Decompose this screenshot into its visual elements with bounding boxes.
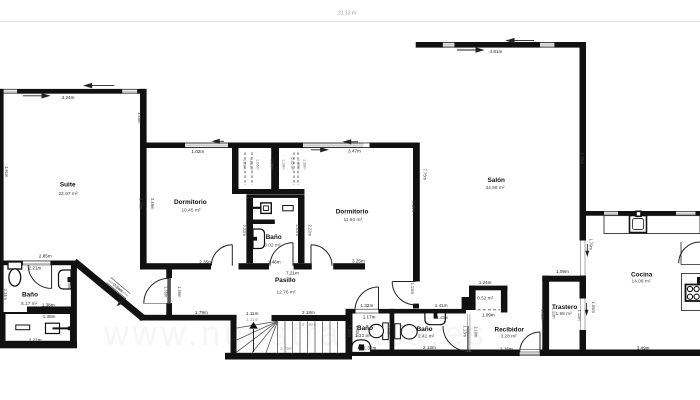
- svg-text:1.11m: 1.11m: [551, 308, 556, 320]
- svg-text:2.34m: 2.34m: [3, 289, 8, 301]
- svg-text:1.36m: 1.36m: [177, 286, 182, 298]
- svg-text:1.11m: 1.11m: [577, 310, 582, 322]
- svg-text:2.21m: 2.21m: [29, 265, 42, 270]
- svg-text:1.32m: 1.32m: [361, 303, 374, 308]
- svg-text:1.06m: 1.06m: [256, 159, 260, 170]
- svg-text:Recibidor: Recibidor: [495, 326, 525, 333]
- svg-text:3.49m: 3.49m: [150, 198, 155, 210]
- svg-text:1.98 m²: 1.98 m²: [556, 311, 573, 317]
- svg-text:3.47m: 3.47m: [348, 149, 361, 154]
- svg-text:Baño: Baño: [417, 326, 433, 333]
- svg-text:14.06 m²: 14.06 m²: [632, 279, 651, 285]
- svg-text:3.02 m²: 3.02 m²: [264, 242, 281, 248]
- svg-text:1.41m: 1.41m: [435, 303, 448, 308]
- svg-text:2.35m: 2.35m: [199, 259, 212, 264]
- svg-text:2.16m: 2.16m: [500, 346, 513, 351]
- svg-text:1.09m: 1.09m: [482, 312, 495, 317]
- svg-text:1.05m: 1.05m: [347, 326, 352, 338]
- svg-text:2.21m: 2.21m: [29, 337, 42, 342]
- svg-text:1.11m: 1.11m: [246, 311, 259, 316]
- svg-text:3.49m: 3.49m: [637, 346, 650, 351]
- svg-text:34.88 m²: 34.88 m²: [486, 185, 505, 191]
- svg-text:2.41 m²: 2.41 m²: [418, 334, 435, 340]
- svg-text:2.18m: 2.18m: [302, 322, 315, 327]
- svg-text:21.13 m: 21.13 m: [338, 11, 356, 17]
- svg-text:0.91m: 0.91m: [399, 325, 403, 335]
- svg-text:1.46m: 1.46m: [137, 112, 142, 124]
- svg-text:3.28 m²: 3.28 m²: [501, 333, 518, 339]
- svg-text:2.13m: 2.13m: [423, 345, 436, 350]
- svg-text:4.24m: 4.24m: [62, 95, 75, 100]
- svg-text:0.55m: 0.55m: [67, 279, 71, 289]
- svg-text:Salón: Salón: [488, 177, 505, 184]
- svg-text:1.28m: 1.28m: [296, 159, 300, 170]
- svg-text:11.60 m²: 11.60 m²: [344, 217, 363, 223]
- svg-text:1.79m: 1.79m: [589, 239, 594, 251]
- svg-text:2.18m: 2.18m: [302, 310, 315, 315]
- svg-text:3.76m: 3.76m: [139, 198, 144, 210]
- svg-text:3.25m: 3.25m: [352, 259, 365, 264]
- svg-text:0.88 m²: 0.88 m²: [249, 158, 253, 172]
- svg-text:1.37m: 1.37m: [364, 345, 377, 350]
- svg-text:Baño: Baño: [266, 234, 282, 241]
- svg-text:2.22m: 2.22m: [242, 225, 247, 237]
- svg-text:4.91m: 4.91m: [4, 166, 9, 178]
- svg-text:1.02m: 1.02m: [191, 149, 204, 154]
- svg-text:1.13m: 1.13m: [410, 283, 415, 295]
- svg-text:1.28m: 1.28m: [302, 159, 306, 170]
- svg-text:12.76 m²: 12.76 m²: [277, 289, 296, 295]
- svg-text:1.38m: 1.38m: [43, 314, 56, 319]
- svg-text:4.81m: 4.81m: [490, 49, 503, 54]
- svg-text:1.11m: 1.11m: [246, 317, 259, 322]
- svg-text:7.75m: 7.75m: [423, 169, 428, 181]
- svg-text:3.29m: 3.29m: [280, 346, 293, 351]
- svg-text:Dormitorio: Dormitorio: [174, 199, 207, 206]
- svg-text:5.17 m²: 5.17 m²: [21, 301, 38, 307]
- svg-text:1.06m: 1.06m: [591, 302, 596, 314]
- svg-text:2.03m: 2.03m: [295, 225, 300, 237]
- svg-text:1.17m: 1.17m: [363, 314, 376, 319]
- svg-text:7.21m: 7.21m: [286, 270, 299, 275]
- svg-text:2.22m: 2.22m: [308, 225, 313, 237]
- svg-text:1.18m: 1.18m: [269, 159, 273, 170]
- svg-text:1.16m: 1.16m: [474, 326, 479, 338]
- svg-text:Suite: Suite: [60, 181, 76, 188]
- svg-text:3.48m: 3.48m: [411, 201, 416, 213]
- svg-text:1.23m: 1.23m: [243, 159, 247, 170]
- svg-text:1.18m: 1.18m: [281, 159, 285, 170]
- svg-text:Pasillo: Pasillo: [275, 277, 296, 284]
- svg-text:0.62 m²: 0.62 m²: [290, 158, 294, 172]
- svg-text:22.97 m²: 22.97 m²: [59, 191, 78, 197]
- svg-text:1.35m: 1.35m: [164, 286, 169, 298]
- svg-text:1.79m: 1.79m: [195, 310, 208, 315]
- svg-text:6.78m: 6.78m: [579, 153, 584, 165]
- svg-text:1.24m: 1.24m: [479, 280, 492, 285]
- svg-text:Dormitorio: Dormitorio: [336, 208, 369, 215]
- svg-text:10.45 m²: 10.45 m²: [182, 208, 201, 214]
- svg-text:1.13m: 1.13m: [463, 326, 468, 338]
- svg-text:1.38m: 1.38m: [42, 302, 55, 307]
- svg-text:Baño: Baño: [22, 292, 38, 299]
- svg-text:1.09m: 1.09m: [556, 269, 569, 274]
- svg-text:1.05m: 1.05m: [355, 326, 360, 338]
- svg-text:2.85m: 2.85m: [39, 254, 52, 259]
- svg-text:0.52 m²: 0.52 m²: [477, 296, 494, 302]
- svg-text:1.46m: 1.46m: [268, 259, 281, 264]
- svg-text:1.43m: 1.43m: [437, 315, 449, 320]
- svg-text:1.88m: 1.88m: [540, 309, 545, 321]
- svg-text:Cocina: Cocina: [631, 271, 653, 278]
- svg-text:0.91m: 0.91m: [387, 325, 391, 335]
